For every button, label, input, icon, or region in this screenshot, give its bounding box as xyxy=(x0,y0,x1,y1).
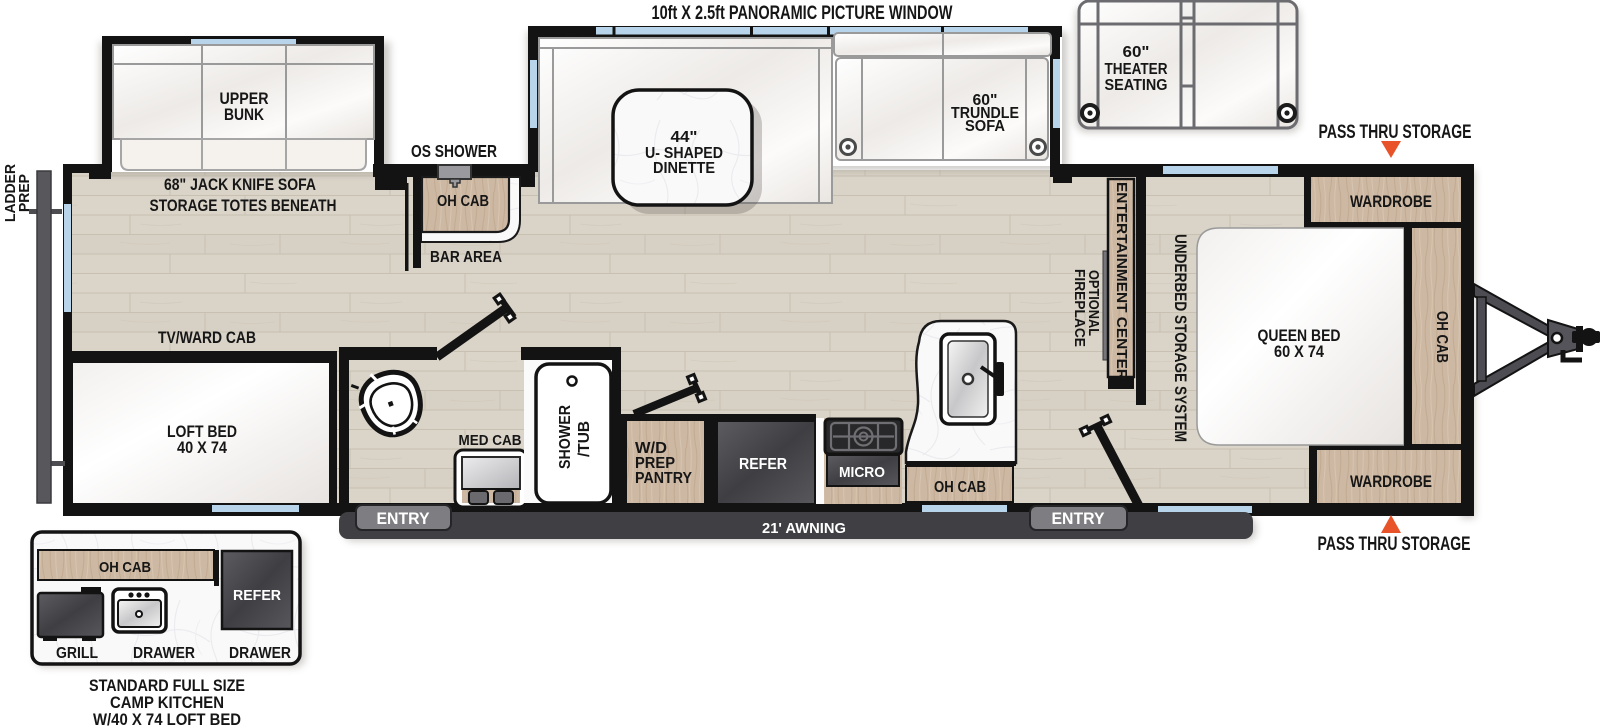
svg-text:DINETTE: DINETTE xyxy=(653,160,715,177)
svg-text:ENTRY: ENTRY xyxy=(1052,510,1105,528)
svg-text:PASS THRU STORAGE: PASS THRU STORAGE xyxy=(1319,122,1472,143)
svg-text:REFER: REFER xyxy=(233,587,281,604)
svg-text:FIREPLACE: FIREPLACE xyxy=(1071,269,1088,347)
svg-text:WARDROBE: WARDROBE xyxy=(1350,473,1432,491)
svg-text:SOFA: SOFA xyxy=(965,118,1005,135)
svg-text:DRAWER: DRAWER xyxy=(133,645,195,662)
svg-text:REFER: REFER xyxy=(739,456,787,473)
svg-text:MICRO: MICRO xyxy=(839,464,885,481)
svg-text:60": 60" xyxy=(1123,44,1150,61)
svg-text:OH CAB: OH CAB xyxy=(437,193,489,210)
svg-text:PREP: PREP xyxy=(16,174,33,212)
svg-text:68" JACK KNIFE SOFA: 68" JACK KNIFE SOFA xyxy=(164,175,316,194)
svg-text:ENTRY: ENTRY xyxy=(377,510,430,528)
svg-text:60 X 74: 60 X 74 xyxy=(1274,343,1325,361)
svg-text:/TUB: /TUB xyxy=(576,421,593,457)
svg-text:WARDROBE: WARDROBE xyxy=(1350,193,1432,211)
svg-text:10ft X 2.5ft PANORAMIC PICTURE: 10ft X 2.5ft PANORAMIC PICTURE WINDOW xyxy=(652,2,953,24)
svg-text:21' AWNING: 21' AWNING xyxy=(762,520,846,537)
svg-text:OS SHOWER: OS SHOWER xyxy=(411,141,497,161)
svg-text:STORAGE TOTES BENEATH: STORAGE TOTES BENEATH xyxy=(150,196,337,215)
svg-text:THEATER: THEATER xyxy=(1105,61,1168,78)
svg-text:W/40 X 74 LOFT BED: W/40 X 74 LOFT BED xyxy=(93,710,241,727)
svg-text:PANTRY: PANTRY xyxy=(635,470,693,487)
svg-text:OH CAB: OH CAB xyxy=(1433,311,1450,363)
svg-text:UNDERBED STORAGE SYSTEM: UNDERBED STORAGE SYSTEM xyxy=(1171,234,1189,442)
svg-text:ENTERTAINMENT CENTER: ENTERTAINMENT CENTER xyxy=(1113,182,1130,380)
svg-text:44": 44" xyxy=(671,129,698,146)
svg-text:SHOWER: SHOWER xyxy=(557,405,574,469)
svg-text:TV/WARD CAB: TV/WARD CAB xyxy=(158,329,256,347)
svg-text:SEATING: SEATING xyxy=(1105,77,1168,94)
svg-text:GRILL: GRILL xyxy=(56,645,98,662)
svg-text:BAR AREA: BAR AREA xyxy=(430,249,502,266)
svg-text:MED CAB: MED CAB xyxy=(459,433,522,449)
svg-text:40 X 74: 40 X 74 xyxy=(177,439,228,457)
svg-text:PASS THRU STORAGE: PASS THRU STORAGE xyxy=(1318,534,1471,555)
svg-text:DRAWER: DRAWER xyxy=(229,645,291,662)
svg-text:OH CAB: OH CAB xyxy=(934,479,986,496)
svg-text:OH CAB: OH CAB xyxy=(99,559,151,576)
svg-text:BUNK: BUNK xyxy=(224,106,264,124)
